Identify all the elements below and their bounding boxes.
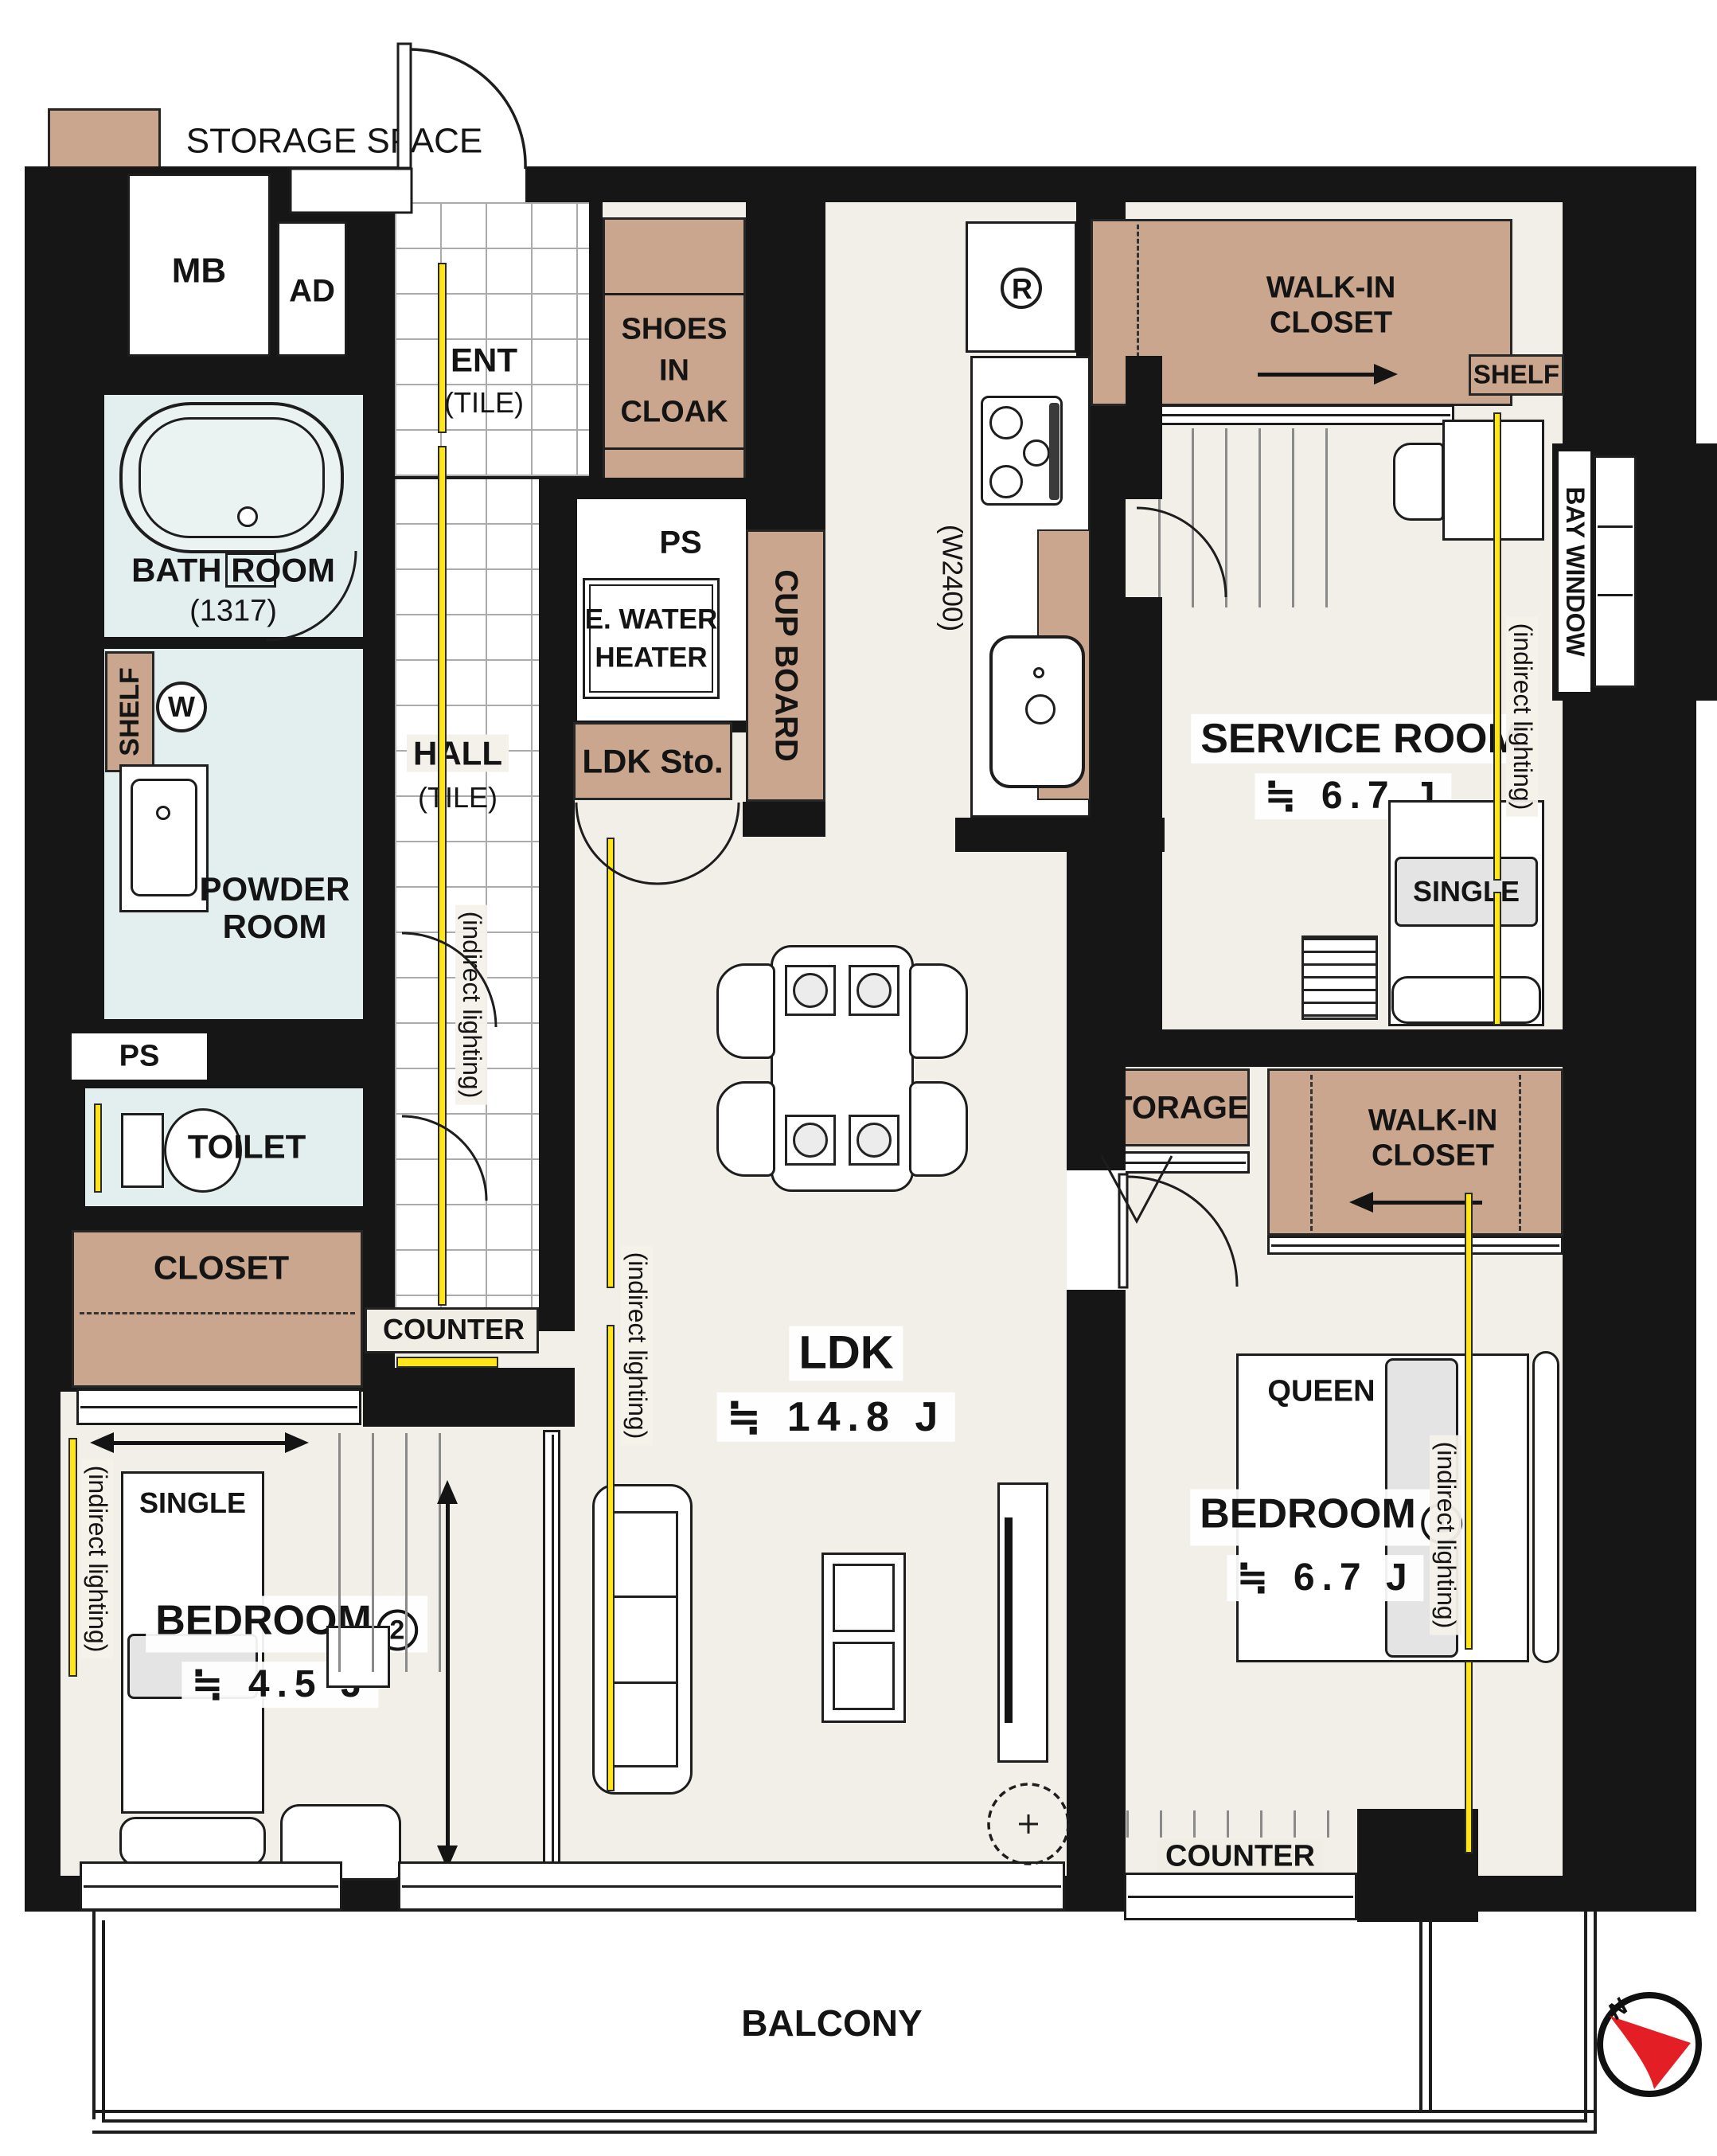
powder-door-arc	[402, 933, 496, 1027]
bath-door-arc	[267, 551, 356, 640]
bedroom1-door-arc	[1127, 1177, 1237, 1287]
entrance-door-arc	[411, 49, 525, 169]
plant-cross	[1019, 1814, 1038, 1834]
entrance-porch	[291, 169, 412, 213]
service-door-arc	[1137, 508, 1226, 597]
folding-door-arc	[658, 803, 739, 884]
entrance-door-leaf	[398, 44, 411, 168]
floor-plan: STORAGE SPACE MB AD BATH ROOM (1317) SHE…	[0, 0, 1717, 2156]
folding-door-arc	[576, 803, 658, 884]
overlay: N	[0, 0, 1717, 2156]
storage-folding-door-lines	[1102, 1156, 1172, 1221]
toilet-door-arc	[402, 1116, 486, 1201]
